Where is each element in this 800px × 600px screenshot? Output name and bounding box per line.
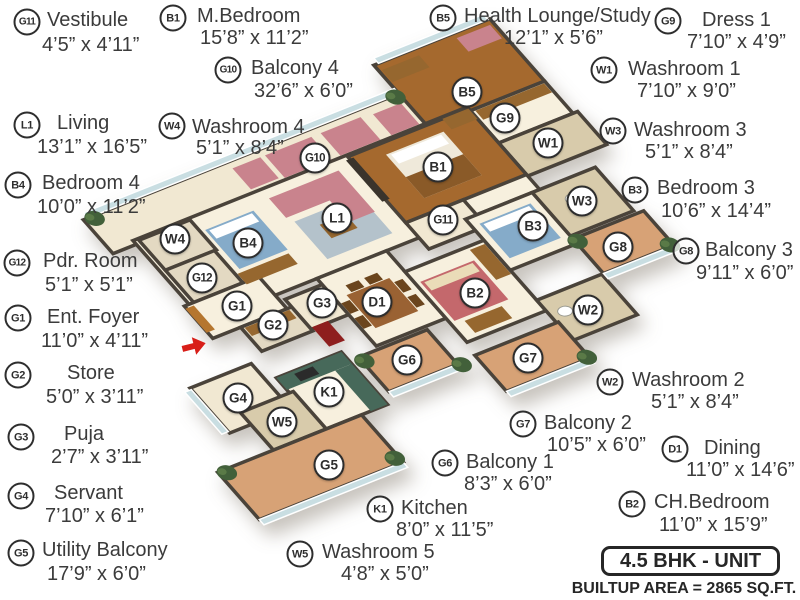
room-name-G5: Utility Balcony <box>42 539 168 562</box>
room-dims-G6: 8’3” x 6’0” <box>464 473 552 496</box>
room-dims-G3: 2’7” x 3’11” <box>51 446 148 469</box>
legend-code-badge-G12: G12 <box>4 250 31 277</box>
room-dims-G7: 10’5” x 6’0” <box>547 434 646 457</box>
room-name-G7: Balcony 2 <box>544 412 632 435</box>
room-name-B4: Bedroom 4 <box>42 172 140 195</box>
room-name-G9: Dress 1 <box>702 9 771 32</box>
plan-marker-G8: G8 <box>603 232 634 263</box>
labels-layer: G11Vestibule4’5” x 4’11”G11B1M.Bedroom15… <box>0 0 800 600</box>
legend-code-badge-W2: W2 <box>597 369 624 396</box>
room-dims-B1: 15’8” x 11’2” <box>200 27 309 50</box>
room-name-D1: Dining <box>704 437 761 460</box>
legend-code-badge-B2: B2 <box>619 491 646 518</box>
room-dims-B2: 11’0” x 15’9” <box>659 514 768 537</box>
room-dims-B3: 10’6” x 14’4” <box>661 200 771 223</box>
room-dims-L1: 13’1” x 16’5” <box>37 136 147 159</box>
legend-code-badge-G4: G4 <box>8 483 35 510</box>
room-dims-G5: 17’9” x 6’0” <box>47 563 146 586</box>
legend-code-badge-B5: B5 <box>430 5 457 32</box>
legend-code-badge-G3: G3 <box>8 424 35 451</box>
legend-code-badge-G10: G10 <box>215 57 242 84</box>
room-dims-G2: 5’0” x 3’11” <box>46 386 143 409</box>
room-dims-K1: 8’0” x 11’5” <box>396 519 493 542</box>
room-name-W3: Washroom 3 <box>634 119 747 142</box>
plan-marker-G10: G10 <box>300 143 331 174</box>
room-name-G6: Balcony 1 <box>466 451 554 474</box>
room-name-B1: M.Bedroom <box>197 5 300 28</box>
legend-code-badge-W3: W3 <box>600 118 627 145</box>
plan-marker-L1: L1 <box>322 203 353 234</box>
room-dims-B5: 12’1” x 5’6” <box>504 27 603 50</box>
plan-marker-W2: W2 <box>573 295 604 326</box>
room-name-B2: CH.Bedroom <box>654 491 770 514</box>
legend-code-badge-D1: D1 <box>662 436 689 463</box>
room-name-W1: Washroom 1 <box>628 58 741 81</box>
legend-code-badge-B3: B3 <box>622 177 649 204</box>
room-dims-G8: 9’11” x 6’0” <box>696 262 793 285</box>
room-name-L1: Living <box>57 112 109 135</box>
plan-marker-B5: B5 <box>452 77 483 108</box>
legend-code-badge-G8: G8 <box>673 238 700 265</box>
legend-code-badge-G5: G5 <box>8 540 35 567</box>
room-dims-D1: 11’0” x 14’6” <box>686 459 795 482</box>
room-dims-G12: 5’1” x 5’1” <box>45 274 133 297</box>
room-name-W5: Washroom 5 <box>322 541 435 564</box>
plan-marker-W5: W5 <box>267 407 298 438</box>
legend-code-badge-B1: B1 <box>160 5 187 32</box>
legend-code-badge-G2: G2 <box>5 362 32 389</box>
plan-marker-G4: G4 <box>223 383 254 414</box>
room-name-G11: Vestibule <box>47 9 128 32</box>
room-dims-W1: 7’10” x 9’0” <box>637 80 736 103</box>
room-name-G4: Servant <box>54 482 123 505</box>
room-dims-W4: 5’1” x 8’4” <box>196 137 284 160</box>
floorplan-page: G11Vestibule4’5” x 4’11”G11B1M.Bedroom15… <box>0 0 800 600</box>
room-name-G12: Pdr. Room <box>43 250 137 273</box>
legend-code-badge-G1: G1 <box>5 305 32 332</box>
room-name-K1: Kitchen <box>401 497 468 520</box>
plan-marker-K1: K1 <box>314 377 345 408</box>
room-name-G10: Balcony 4 <box>251 57 339 80</box>
room-dims-W3: 5’1” x 8’4” <box>645 141 733 164</box>
legend-code-badge-W4: W4 <box>159 113 186 140</box>
legend-code-badge-G6: G6 <box>432 450 459 477</box>
room-name-G1: Ent. Foyer <box>47 306 139 329</box>
room-name-B5: Health Lounge/Study <box>464 5 651 28</box>
room-name-G8: Balcony 3 <box>705 239 793 262</box>
plan-marker-G12: G12 <box>187 263 218 294</box>
room-dims-W2: 5’1” x 8’4” <box>651 391 739 414</box>
room-dims-G10: 32’6” x 6’0” <box>254 80 353 103</box>
room-name-G2: Store <box>67 362 115 385</box>
legend-code-badge-G9: G9 <box>655 8 682 35</box>
plan-marker-B3: B3 <box>518 211 549 242</box>
plan-marker-D1: D1 <box>362 287 393 318</box>
legend-code-badge-K1: K1 <box>367 496 394 523</box>
plan-marker-G7: G7 <box>513 343 544 374</box>
unit-type-badge: 4.5 BHK - UNIT <box>601 546 780 576</box>
plan-marker-G1: G1 <box>222 291 253 322</box>
plan-marker-G2: G2 <box>258 310 289 341</box>
room-dims-G4: 7’10” x 6’1” <box>45 505 144 528</box>
room-dims-W5: 4’8” x 5’0” <box>341 563 429 586</box>
plan-marker-W1: W1 <box>533 128 564 159</box>
plan-marker-B4: B4 <box>233 228 264 259</box>
plan-marker-G6: G6 <box>392 345 423 376</box>
room-dims-G11: 4’5” x 4’11” <box>42 34 139 57</box>
legend-code-badge-B4: B4 <box>5 172 32 199</box>
room-dims-G9: 7’10” x 4’9” <box>687 31 786 54</box>
room-dims-B4: 10’0” x 11’2” <box>37 196 146 219</box>
legend-code-badge-G7: G7 <box>510 411 537 438</box>
plan-marker-W3: W3 <box>567 186 598 217</box>
room-name-W2: Washroom 2 <box>632 369 745 392</box>
room-dims-G1: 11’0” x 4’11” <box>41 330 148 353</box>
legend-code-badge-W5: W5 <box>287 541 314 568</box>
plan-marker-G9: G9 <box>490 103 521 134</box>
plan-marker-W4: W4 <box>160 224 191 255</box>
plan-marker-G11: G11 <box>428 205 459 236</box>
plan-marker-G5: G5 <box>314 450 345 481</box>
plan-marker-B2: B2 <box>460 278 491 309</box>
legend-code-badge-L1: L1 <box>14 112 41 139</box>
plan-marker-B1: B1 <box>423 152 454 183</box>
room-name-W4: Washroom 4 <box>192 116 305 139</box>
builtup-area-label: BUILTUP AREA = 2865 SQ.FT. <box>570 580 798 598</box>
room-name-B3: Bedroom 3 <box>657 177 755 200</box>
legend-code-badge-W1: W1 <box>591 57 618 84</box>
room-name-G3: Puja <box>64 423 104 446</box>
legend-code-badge-G11: G11 <box>14 9 41 36</box>
plan-marker-G3: G3 <box>307 288 338 319</box>
